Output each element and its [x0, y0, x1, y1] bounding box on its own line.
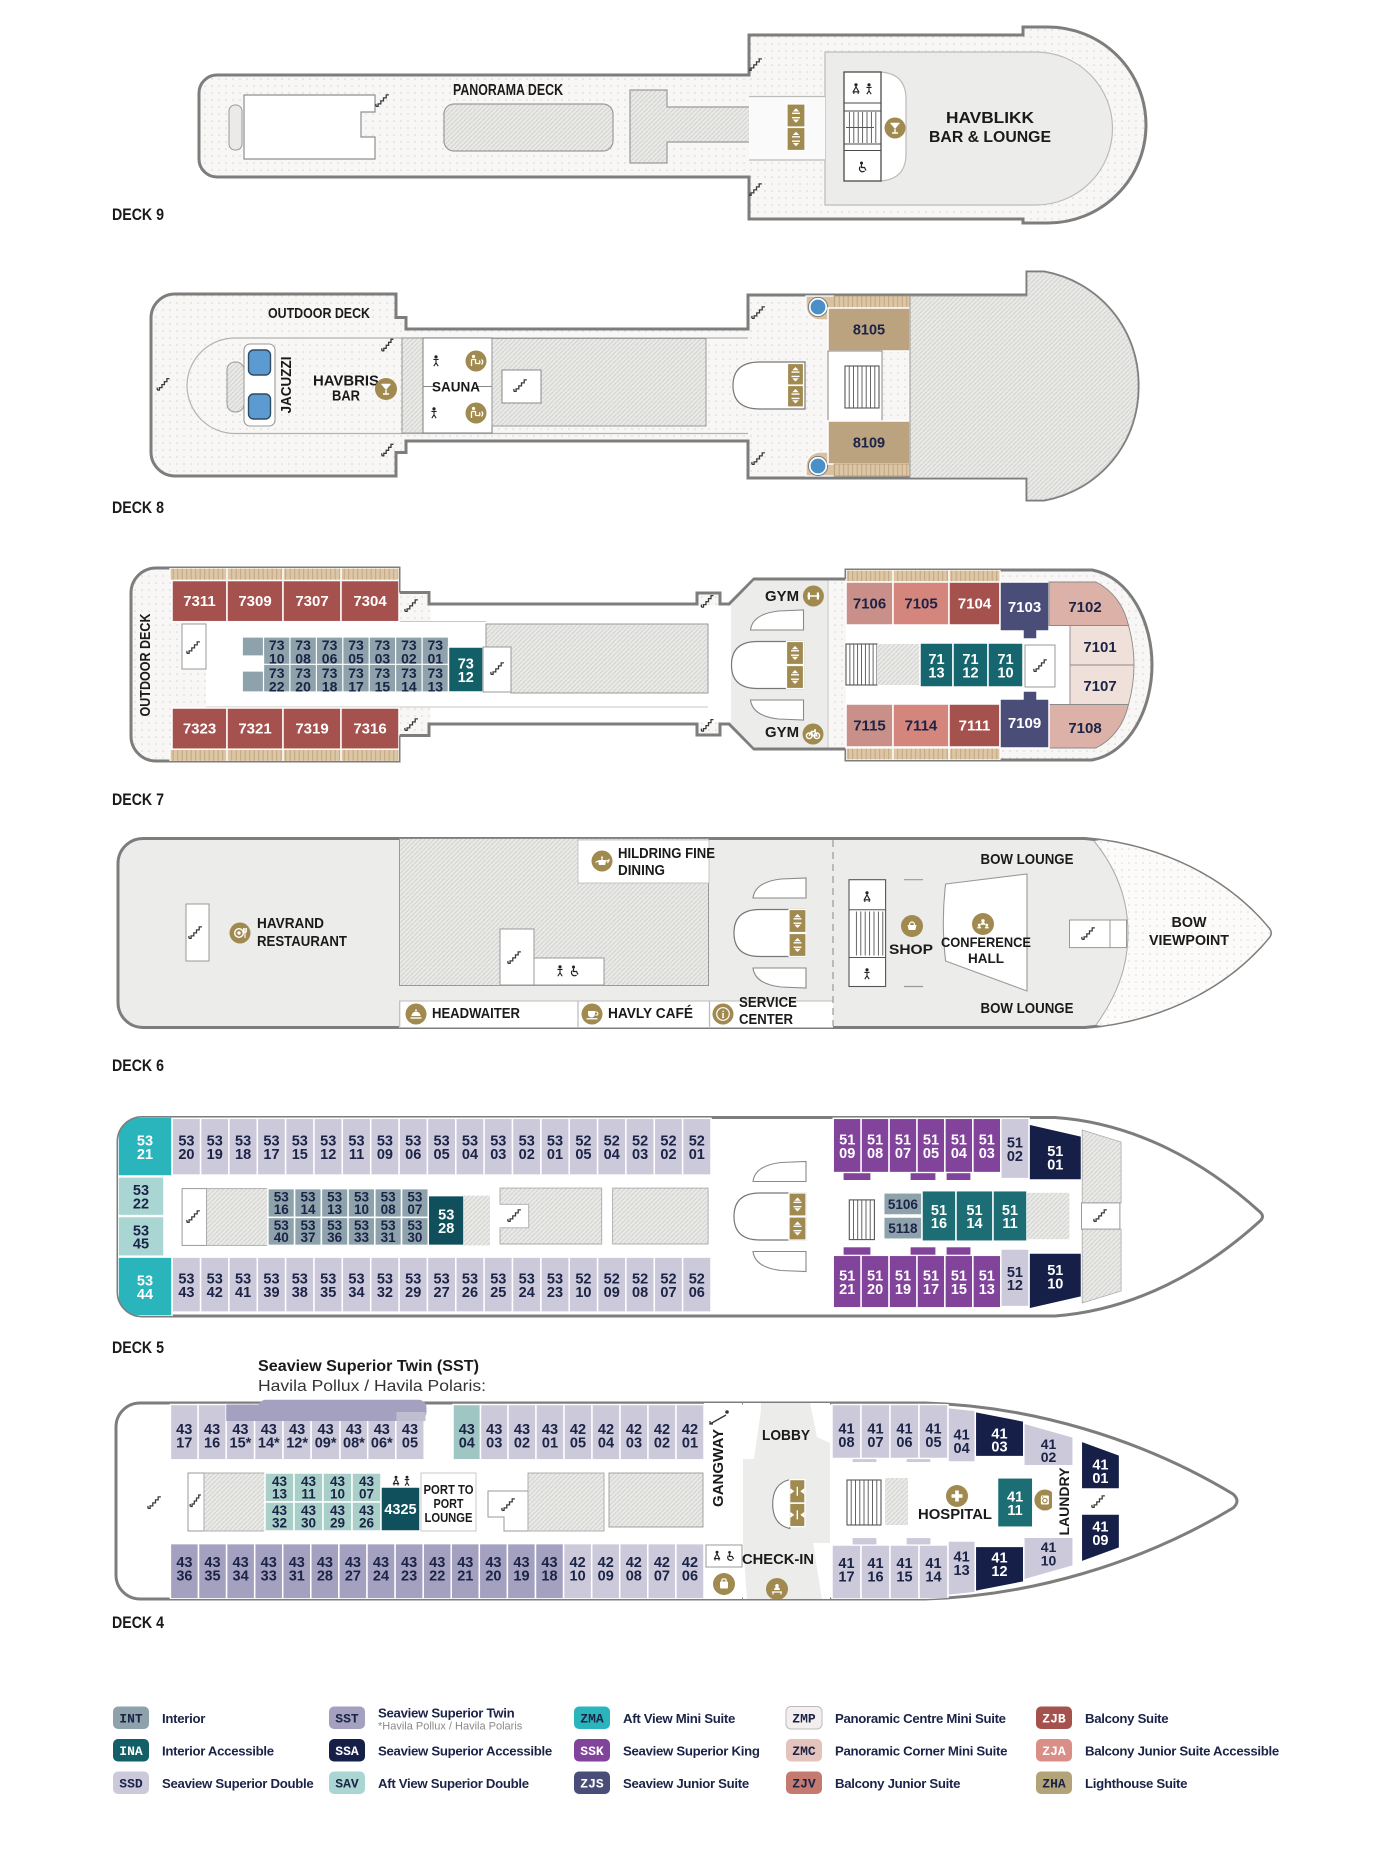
- svg-text:19: 19: [895, 1282, 911, 1298]
- svg-text:13: 13: [272, 1486, 288, 1501]
- svg-text:08: 08: [838, 1435, 854, 1451]
- svg-text:12: 12: [1007, 1278, 1023, 1294]
- svg-text:23: 23: [401, 1569, 417, 1585]
- svg-text:*Havila Pollux / Havila Polari: *Havila Pollux / Havila Polaris: [378, 1721, 523, 1733]
- svg-text:22: 22: [133, 1197, 149, 1213]
- svg-text:JACUZZI: JACUZZI: [279, 357, 295, 414]
- svg-text:17: 17: [263, 1147, 279, 1163]
- svg-text:7316: 7316: [353, 721, 386, 738]
- svg-text:10: 10: [575, 1285, 591, 1301]
- svg-text:7105: 7105: [904, 596, 937, 613]
- svg-text:7309: 7309: [238, 593, 271, 610]
- svg-text:BAR: BAR: [332, 388, 360, 405]
- svg-text:HILDRING FINE: HILDRING FINE: [618, 846, 715, 862]
- svg-text:Seaview Junior Suite: Seaview Junior Suite: [623, 1776, 749, 1791]
- svg-text:DECK 7: DECK 7: [112, 790, 164, 809]
- svg-text:18: 18: [322, 679, 338, 695]
- svg-text:CONFERENCE: CONFERENCE: [941, 934, 1031, 950]
- svg-text:11: 11: [349, 1147, 364, 1163]
- svg-text:38: 38: [292, 1285, 308, 1301]
- svg-text:7108: 7108: [1068, 720, 1101, 737]
- svg-text:01: 01: [1047, 1157, 1063, 1173]
- svg-text:17: 17: [348, 679, 364, 695]
- svg-text:20: 20: [178, 1147, 194, 1163]
- svg-text:15: 15: [951, 1282, 967, 1298]
- svg-text:16: 16: [931, 1216, 947, 1232]
- svg-text:33: 33: [354, 1230, 370, 1245]
- svg-text:16: 16: [867, 1569, 883, 1585]
- svg-text:INA: INA: [119, 1744, 143, 1759]
- svg-text:Aft View Mini Suite: Aft View Mini Suite: [623, 1711, 735, 1726]
- svg-text:7319: 7319: [295, 721, 328, 738]
- svg-text:Seaview Superior Twin: Seaview Superior Twin: [378, 1706, 515, 1721]
- svg-text:20: 20: [485, 1569, 501, 1585]
- svg-text:02: 02: [660, 1147, 676, 1163]
- svg-text:7115: 7115: [853, 718, 886, 735]
- svg-text:19: 19: [207, 1147, 223, 1163]
- svg-text:35: 35: [320, 1285, 336, 1301]
- svg-text:SSK: SSK: [580, 1744, 604, 1759]
- svg-text:GANGWAY: GANGWAY: [711, 1429, 727, 1507]
- svg-text:DECK 5: DECK 5: [112, 1338, 164, 1357]
- svg-text:24: 24: [373, 1569, 389, 1585]
- svg-text:12: 12: [962, 665, 978, 681]
- svg-text:17: 17: [176, 1436, 192, 1452]
- svg-text:22: 22: [269, 679, 285, 695]
- svg-text:28: 28: [317, 1569, 333, 1585]
- svg-text:08: 08: [381, 1202, 397, 1217]
- svg-text:20: 20: [295, 679, 311, 695]
- svg-text:03: 03: [626, 1436, 642, 1452]
- svg-text:39: 39: [263, 1285, 279, 1301]
- svg-text:7109: 7109: [1008, 715, 1041, 732]
- svg-text:03: 03: [632, 1147, 648, 1163]
- svg-text:7311: 7311: [183, 593, 216, 610]
- svg-text:BOW LOUNGE: BOW LOUNGE: [981, 851, 1074, 868]
- svg-text:GYM: GYM: [765, 724, 799, 741]
- svg-text:ZJA: ZJA: [1042, 1744, 1066, 1759]
- svg-text:HAVRAND: HAVRAND: [257, 916, 324, 932]
- svg-text:PANORAMA DECK: PANORAMA DECK: [453, 82, 563, 99]
- svg-text:10: 10: [570, 1569, 586, 1585]
- svg-text:DECK 9: DECK 9: [112, 205, 164, 224]
- svg-text:i: i: [722, 1010, 725, 1021]
- svg-text:CHECK-IN: CHECK-IN: [742, 1552, 814, 1568]
- svg-text:INT: INT: [119, 1712, 143, 1727]
- svg-text:SSA: SSA: [335, 1744, 359, 1759]
- svg-text:ZMA: ZMA: [580, 1712, 604, 1727]
- svg-text:34: 34: [348, 1285, 364, 1301]
- svg-text:15*: 15*: [230, 1436, 252, 1452]
- svg-text:04: 04: [604, 1147, 620, 1163]
- svg-text:40: 40: [274, 1230, 289, 1245]
- svg-text:10: 10: [1047, 1276, 1063, 1292]
- svg-text:24: 24: [519, 1285, 535, 1301]
- svg-text:33: 33: [261, 1569, 277, 1585]
- svg-text:01: 01: [547, 1147, 563, 1163]
- svg-text:ZJV: ZJV: [792, 1777, 816, 1792]
- svg-text:16: 16: [274, 1202, 290, 1217]
- svg-text:05: 05: [575, 1147, 591, 1163]
- svg-text:14: 14: [966, 1216, 982, 1232]
- svg-text:Aft View Superior Double: Aft View Superior Double: [378, 1776, 529, 1791]
- svg-text:19: 19: [513, 1569, 529, 1585]
- svg-text:11: 11: [1007, 1503, 1022, 1519]
- svg-text:06*: 06*: [371, 1436, 393, 1452]
- svg-text:07: 07: [654, 1569, 670, 1585]
- svg-text:05: 05: [923, 1146, 939, 1162]
- svg-text:14*: 14*: [258, 1436, 280, 1452]
- svg-text:PORT: PORT: [434, 1496, 464, 1511]
- svg-text:13: 13: [954, 1563, 970, 1579]
- svg-text:4325: 4325: [384, 1502, 416, 1518]
- svg-text:10: 10: [997, 665, 1013, 681]
- svg-text:18: 18: [541, 1569, 557, 1585]
- svg-text:03: 03: [490, 1147, 506, 1163]
- svg-text:05: 05: [570, 1436, 586, 1452]
- svg-text:15: 15: [896, 1569, 912, 1585]
- svg-text:ZMC: ZMC: [792, 1744, 816, 1759]
- svg-text:08*: 08*: [343, 1436, 365, 1452]
- svg-text:Seaview Superior Accessible: Seaview Superior Accessible: [378, 1744, 552, 1759]
- svg-text:26: 26: [462, 1285, 478, 1301]
- svg-text:7107: 7107: [1083, 678, 1116, 695]
- svg-text:12: 12: [320, 1147, 336, 1163]
- svg-text:Interior: Interior: [162, 1711, 205, 1726]
- svg-text:12: 12: [991, 1564, 1007, 1580]
- svg-text:04: 04: [598, 1436, 614, 1452]
- svg-text:ZJS: ZJS: [580, 1777, 604, 1792]
- svg-text:7304: 7304: [353, 593, 387, 610]
- svg-text:7106: 7106: [853, 596, 886, 613]
- svg-text:Balcony Junior Suite: Balcony Junior Suite: [835, 1776, 960, 1791]
- svg-text:SHOP: SHOP: [889, 941, 933, 957]
- svg-text:03: 03: [991, 1440, 1007, 1456]
- svg-text:RESTAURANT: RESTAURANT: [257, 934, 347, 950]
- svg-text:HEADWAITER: HEADWAITER: [432, 1006, 520, 1022]
- svg-text:03: 03: [486, 1436, 502, 1452]
- svg-text:8109: 8109: [853, 436, 885, 452]
- svg-text:20: 20: [867, 1282, 883, 1298]
- svg-text:SST: SST: [335, 1712, 359, 1727]
- svg-text:7114: 7114: [905, 718, 938, 735]
- svg-text:LOUNGE: LOUNGE: [425, 1510, 473, 1525]
- svg-text:21: 21: [137, 1147, 153, 1163]
- svg-text:03: 03: [979, 1146, 995, 1162]
- svg-text:Seaview Superior King: Seaview Superior King: [623, 1744, 760, 1759]
- svg-text:5118: 5118: [888, 1221, 918, 1236]
- svg-text:08: 08: [632, 1285, 648, 1301]
- svg-text:36: 36: [176, 1569, 192, 1585]
- svg-text:21: 21: [839, 1282, 855, 1298]
- svg-text:34: 34: [233, 1569, 249, 1585]
- svg-text:16: 16: [204, 1436, 220, 1452]
- svg-text:Seaview Superior Twin (SST): Seaview Superior Twin (SST): [258, 1358, 479, 1375]
- svg-text:DECK 4: DECK 4: [112, 1613, 164, 1632]
- svg-text:SSD: SSD: [119, 1777, 143, 1792]
- svg-text:13: 13: [979, 1282, 995, 1298]
- svg-text:HOSPITAL: HOSPITAL: [918, 1507, 992, 1523]
- svg-text:10: 10: [330, 1486, 345, 1501]
- svg-text:25: 25: [490, 1285, 506, 1301]
- svg-text:7321: 7321: [238, 721, 271, 738]
- svg-text:01: 01: [682, 1436, 698, 1452]
- svg-text:05: 05: [925, 1435, 941, 1451]
- svg-text:06: 06: [405, 1147, 421, 1163]
- svg-text:02: 02: [1041, 1449, 1057, 1465]
- svg-text:7101: 7101: [1083, 639, 1116, 656]
- svg-text:08: 08: [626, 1569, 642, 1585]
- svg-text:06: 06: [689, 1285, 705, 1301]
- svg-text:HAVBLIKK: HAVBLIKK: [946, 110, 1034, 127]
- svg-text:BOW: BOW: [1172, 914, 1208, 931]
- svg-text:7307: 7307: [295, 593, 328, 610]
- svg-text:7323: 7323: [183, 721, 216, 738]
- svg-text:13: 13: [428, 679, 444, 695]
- svg-text:01: 01: [689, 1147, 705, 1163]
- svg-text:7111: 7111: [959, 718, 991, 735]
- svg-text:SAUNA: SAUNA: [432, 379, 480, 395]
- svg-text:37: 37: [300, 1230, 315, 1245]
- svg-text:02: 02: [519, 1147, 535, 1163]
- svg-text:27: 27: [434, 1285, 450, 1301]
- svg-text:VIEWPOINT: VIEWPOINT: [1149, 932, 1229, 949]
- svg-text:09: 09: [839, 1146, 855, 1162]
- svg-text:09: 09: [1092, 1533, 1108, 1549]
- svg-text:GYM: GYM: [765, 588, 799, 605]
- svg-text:28: 28: [438, 1221, 454, 1237]
- svg-text:13: 13: [928, 665, 944, 681]
- svg-text:08: 08: [867, 1146, 883, 1162]
- svg-text:44: 44: [137, 1287, 153, 1303]
- svg-text:7102: 7102: [1068, 599, 1101, 616]
- svg-text:14: 14: [300, 1202, 316, 1217]
- svg-text:HALL: HALL: [968, 950, 1004, 966]
- svg-text:26: 26: [359, 1515, 375, 1530]
- svg-text:04: 04: [954, 1441, 970, 1457]
- svg-text:29: 29: [405, 1285, 421, 1301]
- svg-text:22: 22: [429, 1569, 445, 1585]
- svg-text:06: 06: [682, 1569, 698, 1585]
- svg-text:ZHA: ZHA: [1042, 1777, 1066, 1792]
- svg-text:42: 42: [207, 1285, 223, 1301]
- svg-text:10: 10: [1041, 1553, 1057, 1569]
- svg-text:45: 45: [133, 1237, 149, 1253]
- svg-text:41: 41: [235, 1285, 251, 1301]
- svg-text:02: 02: [654, 1436, 670, 1452]
- svg-text:5106: 5106: [888, 1197, 919, 1212]
- svg-text:LAUNDRY: LAUNDRY: [1057, 1468, 1072, 1536]
- svg-text:18: 18: [235, 1147, 251, 1163]
- svg-text:OUTDOOR DECK: OUTDOOR DECK: [138, 613, 154, 716]
- svg-text:DECK 8: DECK 8: [112, 498, 164, 517]
- svg-text:27: 27: [345, 1569, 361, 1585]
- svg-text:Balcony Junior Suite Accessibl: Balcony Junior Suite Accessible: [1085, 1744, 1279, 1759]
- svg-text:09: 09: [377, 1147, 393, 1163]
- svg-text:SERVICE: SERVICE: [739, 995, 797, 1011]
- svg-text:30: 30: [301, 1515, 316, 1530]
- svg-text:36: 36: [327, 1230, 343, 1245]
- svg-text:DECK 6: DECK 6: [112, 1056, 164, 1075]
- svg-text:12*: 12*: [286, 1436, 308, 1452]
- svg-text:06: 06: [896, 1435, 912, 1451]
- svg-text:15: 15: [292, 1147, 308, 1163]
- svg-text:Panoramic Corner Mini Suite: Panoramic Corner Mini Suite: [835, 1744, 1007, 1759]
- svg-text:OUTDOOR DECK: OUTDOOR DECK: [268, 305, 370, 322]
- svg-text:7104: 7104: [958, 596, 992, 613]
- svg-text:32: 32: [377, 1285, 393, 1301]
- svg-text:07: 07: [660, 1285, 676, 1301]
- svg-text:DINING: DINING: [618, 863, 665, 879]
- svg-text:HAVLY CAFÉ: HAVLY CAFÉ: [608, 1005, 693, 1022]
- svg-text:17: 17: [838, 1569, 854, 1585]
- svg-text:14: 14: [925, 1569, 941, 1585]
- svg-text:23: 23: [547, 1285, 563, 1301]
- svg-text:11: 11: [1002, 1216, 1017, 1232]
- svg-text:07: 07: [895, 1146, 911, 1162]
- svg-text:05: 05: [402, 1436, 418, 1452]
- svg-text:07: 07: [407, 1202, 422, 1217]
- svg-text:11: 11: [301, 1486, 316, 1501]
- svg-text:14: 14: [401, 679, 417, 695]
- svg-text:07: 07: [359, 1486, 374, 1501]
- svg-text:04: 04: [462, 1147, 478, 1163]
- svg-text:01: 01: [542, 1436, 558, 1452]
- svg-text:05: 05: [434, 1147, 450, 1163]
- svg-text:32: 32: [272, 1515, 287, 1530]
- svg-text:BAR & LOUNGE: BAR & LOUNGE: [929, 129, 1051, 146]
- svg-text:04: 04: [951, 1146, 967, 1162]
- svg-text:PORT TO: PORT TO: [424, 1482, 474, 1497]
- svg-text:30: 30: [407, 1230, 422, 1245]
- svg-text:Balcony Suite: Balcony Suite: [1085, 1711, 1168, 1726]
- svg-text:8105: 8105: [853, 323, 885, 339]
- svg-text:12: 12: [458, 670, 474, 686]
- svg-text:31: 31: [381, 1230, 397, 1245]
- svg-text:02: 02: [1007, 1149, 1023, 1165]
- svg-text:7103: 7103: [1008, 599, 1041, 616]
- svg-text:09: 09: [604, 1285, 620, 1301]
- svg-text:31: 31: [289, 1569, 305, 1585]
- svg-text:ZMP: ZMP: [792, 1712, 816, 1727]
- svg-text:CENTER: CENTER: [739, 1012, 793, 1028]
- svg-text:Panoramic Centre Mini Suite: Panoramic Centre Mini Suite: [835, 1711, 1006, 1726]
- svg-text:29: 29: [330, 1515, 345, 1530]
- svg-text:SAV: SAV: [335, 1777, 359, 1792]
- svg-text:ZJB: ZJB: [1042, 1712, 1066, 1727]
- svg-text:Havila Pollux / Havila Polaris: Havila Pollux / Havila Polaris:: [258, 1378, 486, 1395]
- svg-text:02: 02: [514, 1436, 530, 1452]
- svg-text:21: 21: [457, 1569, 473, 1585]
- svg-text:09*: 09*: [315, 1436, 337, 1452]
- svg-text:35: 35: [204, 1569, 220, 1585]
- svg-text:Lighthouse Suite: Lighthouse Suite: [1085, 1776, 1187, 1791]
- svg-text:Seaview Superior Double: Seaview Superior Double: [162, 1776, 313, 1791]
- svg-text:Interior Accessible: Interior Accessible: [162, 1744, 274, 1759]
- svg-text:17: 17: [923, 1282, 939, 1298]
- svg-text:09: 09: [598, 1569, 614, 1585]
- svg-text:LOBBY: LOBBY: [762, 1427, 810, 1444]
- svg-text:04: 04: [459, 1436, 475, 1452]
- svg-text:15: 15: [375, 679, 391, 695]
- svg-text:07: 07: [867, 1435, 883, 1451]
- svg-text:10: 10: [354, 1202, 369, 1217]
- svg-text:13: 13: [327, 1202, 343, 1217]
- svg-text:01: 01: [1092, 1471, 1108, 1487]
- svg-text:BOW LOUNGE: BOW LOUNGE: [981, 1000, 1074, 1017]
- svg-text:43: 43: [178, 1285, 194, 1301]
